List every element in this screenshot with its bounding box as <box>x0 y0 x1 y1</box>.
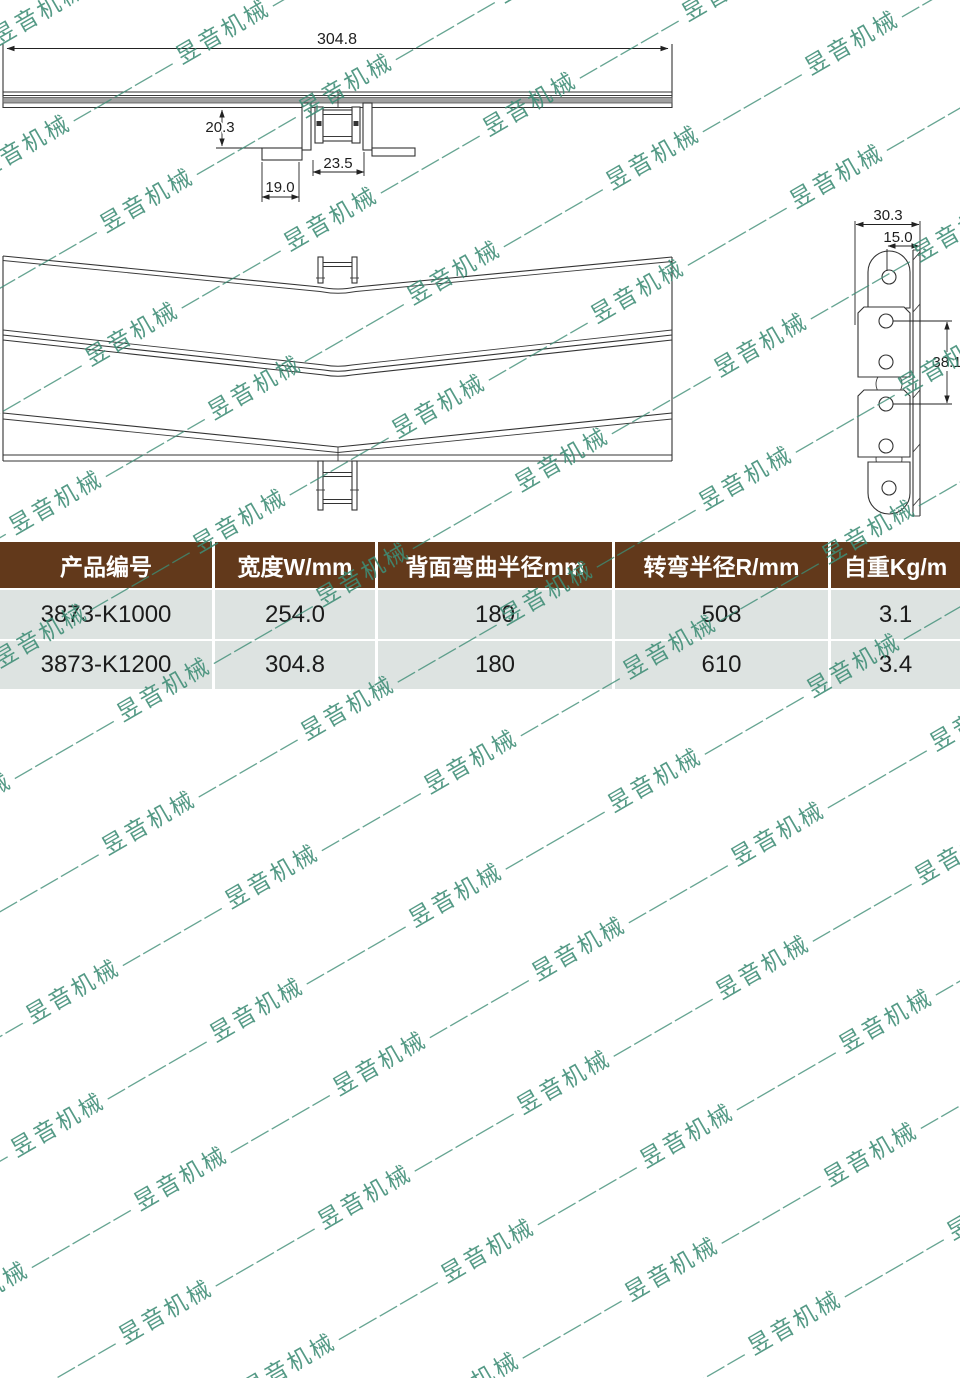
front-view: 20.3 23.5 19.0 304.8 <box>3 31 672 202</box>
watermark-dashes: — — — — — <box>0 1145 16 1223</box>
watermark-text: 昱音机械 <box>819 1117 922 1192</box>
watermark-dashes: — — — — — <box>26 1198 139 1276</box>
plan-view <box>3 256 672 510</box>
watermark-dashes: — — — — — <box>11 1332 124 1378</box>
watermark-dashes: — — — — — <box>193 728 306 806</box>
cell-width: 254.0 <box>215 590 375 639</box>
col-header-turn-radius: 转弯半径R/mm <box>615 542 828 588</box>
watermark-dashes: — — — — — <box>102 1030 215 1108</box>
watermark-dashes: — — — — — <box>409 1102 522 1180</box>
watermark-text: 昱音机械 <box>711 930 814 1005</box>
dim-link-height: 20.3 <box>205 119 234 136</box>
watermark-text: 昱音机械 <box>620 1232 723 1307</box>
watermark-text: 昱音机械 <box>237 1328 340 1378</box>
watermark-row: — — — — — 昱音机械— — — — — 昱音机械— — — — — 昱音… <box>20 682 960 1378</box>
watermark-dashes: — — — — — <box>822 739 935 817</box>
watermark-text: 昱音机械 <box>0 767 16 842</box>
watermark-dashes: — — — — — <box>608 987 721 1065</box>
watermark-dashes: — — — — — <box>623 854 736 932</box>
watermark-text: 昱音机械 <box>0 1256 33 1331</box>
front-right-arm <box>372 148 415 156</box>
cell-weight: 3.4 <box>831 641 960 689</box>
watermark-dashes: — — — — — <box>839 1228 952 1306</box>
watermark-dashes: — — — — — <box>225 1083 338 1161</box>
cell-product-code: 3873-K1200 <box>0 641 212 689</box>
watermark-text: 昱音机械 <box>743 1285 846 1360</box>
watermark-dashes: — — — — — <box>807 872 920 950</box>
watermark-text: 昱音机械 <box>527 911 630 986</box>
watermark-row: — — — — — 昱音机械— — — — — 昱音机械— — — — — 昱音… <box>96 589 960 1378</box>
watermark-dashes: — — — — — <box>117 896 230 974</box>
watermark-dashes: — — — — — <box>500 800 613 878</box>
watermark-dashes: — — — — — <box>210 1217 323 1295</box>
front-left-plate <box>302 103 311 150</box>
watermark-text: 昱音机械 <box>0 900 1 975</box>
watermark-text: 昱音机械 <box>21 954 124 1029</box>
dim-tab-offset: 19.0 <box>265 179 294 196</box>
watermark-dashes: — — — — — <box>316 781 429 859</box>
watermark-text: 昱音机械 <box>419 724 522 799</box>
watermark-text: 昱音机械 <box>114 1274 217 1349</box>
watermark-dashes: — — — — — <box>640 1343 753 1378</box>
cell-width: 304.8 <box>215 641 375 689</box>
watermark-text: 昱音机械 <box>220 839 323 914</box>
watermark-dashes: — — — — — <box>699 685 812 763</box>
cell-back-bend-radius: 180 <box>378 590 612 639</box>
watermark-text: 昱音机械 <box>6 1087 109 1162</box>
watermark-dashes: — — — — — <box>716 1174 829 1252</box>
watermark-dashes: — — — — — <box>532 1156 645 1234</box>
watermark-dashes: — — — — — <box>333 1271 446 1349</box>
technical-drawing: 20.3 23.5 19.0 304.8 <box>0 0 960 542</box>
watermark-text: 昱音机械 <box>436 1213 539 1288</box>
cell-back-bend-radius: 180 <box>378 641 612 689</box>
watermark-text: 昱音机械 <box>205 972 308 1047</box>
cell-turn-radius: 610 <box>615 641 828 689</box>
watermark-text: 昱音机械 <box>925 681 960 756</box>
watermark-text: 昱音机械 <box>603 743 706 818</box>
watermark-text: 昱音机械 <box>512 1045 615 1120</box>
col-header-weight: 自重Kg/m <box>831 542 960 588</box>
watermark-text: 昱音机械 <box>942 1170 960 1245</box>
watermark-dashes: — — — — — <box>915 1059 960 1137</box>
dim-hole-pitch: 38.1 <box>932 354 960 371</box>
watermark-dashes: — — — — — <box>0 1011 31 1089</box>
watermark-text: 昱音机械 <box>328 1026 431 1101</box>
col-header-back-bend-radius: 背面弯曲半径mm <box>378 542 612 588</box>
dim-roller-width: 23.5 <box>323 155 352 172</box>
watermark-text: 昱音机械 <box>726 796 829 871</box>
dim-edge-offset: 15.0 <box>883 229 912 246</box>
cell-turn-radius: 508 <box>615 590 828 639</box>
watermark-text: 昱音机械 <box>129 1141 232 1216</box>
cell-product-code: 3873-K1000 <box>0 590 212 639</box>
watermark-dashes: — — — — — <box>301 915 414 993</box>
watermark-text: 昱音机械 <box>834 983 937 1058</box>
watermark-dashes: — — — — — <box>517 1289 630 1367</box>
watermark-text: 昱音机械 <box>97 785 200 860</box>
watermark-text: 昱音机械 <box>421 1346 524 1378</box>
watermark-text: 昱音机械 <box>910 815 960 890</box>
cell-weight: 3.1 <box>831 590 960 639</box>
dim-side-width: 30.3 <box>873 207 902 224</box>
col-header-product-code: 产品编号 <box>0 542 212 588</box>
col-header-width: 宽度W/mm <box>215 542 375 588</box>
spec-table: 产品编号 宽度W/mm 背面弯曲半径mm 转弯半径R/mm 自重Kg/m 387… <box>0 542 960 689</box>
watermark-dashes: — — — — — <box>9 709 122 787</box>
front-left-arm <box>262 148 302 160</box>
watermark-dashes: — — — — — <box>930 926 960 1004</box>
watermark-text: 昱音机械 <box>313 1159 416 1234</box>
front-right-plate <box>363 103 372 150</box>
watermark-dashes: — — — — — <box>0 843 107 921</box>
watermark-text: 昱音机械 <box>404 857 507 932</box>
watermark-dashes: — — — — — <box>731 1041 844 1119</box>
watermark-text: 昱音机械 <box>635 1098 738 1173</box>
side-view: 30.3 15.0 38.1 <box>855 207 960 516</box>
plan-bottom-link <box>316 461 359 510</box>
dim-overall-width: 304.8 <box>317 31 357 48</box>
plan-top-link <box>316 257 359 283</box>
watermark-dashes: — — — — — <box>424 969 537 1047</box>
